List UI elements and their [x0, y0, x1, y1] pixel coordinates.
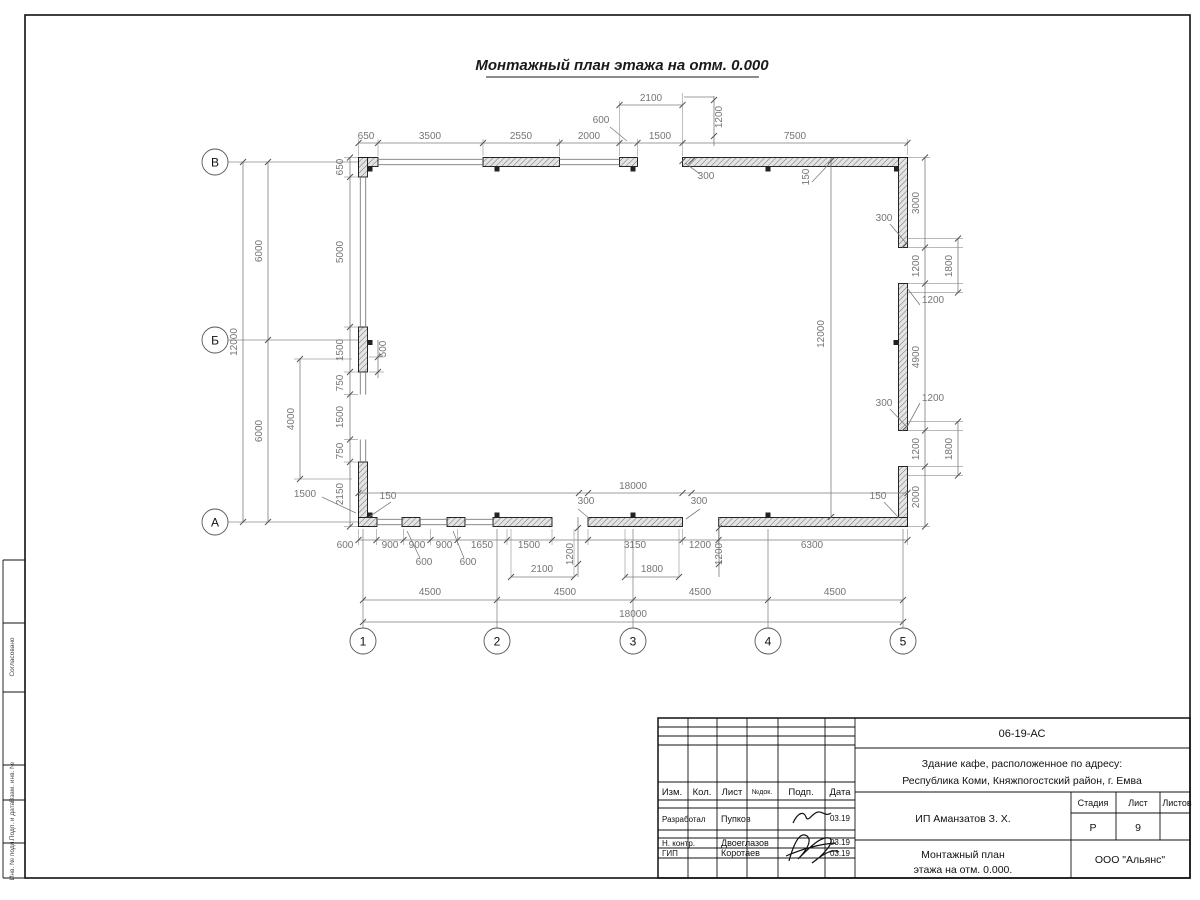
dimension-value: 4500	[689, 587, 712, 598]
row-role-ncontrol: Н. контр.	[662, 839, 695, 848]
dimension-value: 600	[337, 540, 354, 551]
dimension-value: 6000	[254, 419, 265, 442]
dimension-value: 750	[335, 374, 346, 391]
dimension-value: 600	[460, 557, 477, 568]
frame-side-label: Взам. инв. №	[9, 762, 16, 802]
dimension-value: 900	[409, 540, 426, 551]
sheet-number: 9	[1135, 822, 1141, 834]
dimension-value: 500	[378, 340, 389, 357]
row-date-ncontrol: 03.19	[830, 838, 851, 847]
page-title: Монтажный план этажа на отм. 0.000	[475, 57, 769, 74]
col-podp: Подп.	[788, 787, 813, 798]
axis-bubble-label: В	[211, 156, 219, 170]
frame-side-label: Подп. и дата	[9, 801, 16, 840]
dimension-value: 1500	[294, 489, 317, 500]
dimension-value: 12000	[816, 320, 827, 348]
axis-bubble-label: 3	[630, 635, 637, 649]
dimension-value: 7500	[784, 131, 807, 142]
dimension-value: 3500	[419, 131, 442, 142]
dimension-value: 1200	[689, 540, 712, 551]
dimension-value: 4500	[554, 587, 577, 598]
sheet-label: Лист	[1128, 798, 1148, 808]
dimension-value: 1500	[518, 540, 541, 551]
dimension-value: 1800	[944, 437, 955, 460]
dimension-value: 1200	[922, 295, 945, 306]
col-list: Лист	[722, 787, 743, 798]
dimension-value: 18000	[619, 481, 647, 492]
sheet-frame	[3, 15, 1190, 878]
stage-value: Р	[1089, 822, 1096, 834]
dimension-value: 900	[436, 540, 453, 551]
dimension-value: 4500	[824, 587, 847, 598]
row-name-ncontrol: Двоеглазов	[721, 838, 769, 848]
dimension-value: 650	[335, 158, 346, 175]
project-address-line1: Здание кафе, расположенное по адресу:	[922, 758, 1122, 770]
col-izm: Изм.	[662, 787, 682, 798]
dimension-value: 4000	[286, 407, 297, 430]
row-date-developer: 03.19	[830, 814, 851, 823]
dimension-value: 2100	[531, 564, 554, 575]
frame-side-label: Согласовано	[9, 637, 16, 676]
dimension-value: 300	[698, 171, 715, 182]
dimension-value: 1800	[944, 254, 955, 277]
axis-bubble-label: А	[211, 516, 219, 530]
dimension-value: 300	[876, 398, 893, 409]
drawing-sheet: Монтажный план этажа на отм. 0.000	[0, 0, 1200, 900]
dimension-value: 1200	[922, 393, 945, 404]
dimension-value: 1200	[714, 542, 725, 565]
axis-bubble-label: 4	[765, 635, 772, 649]
dimension-value: 12000	[229, 328, 240, 356]
dimension-value: 18000	[619, 609, 647, 620]
col-kol: Кол.	[693, 787, 712, 798]
dimension-value: 650	[358, 131, 375, 142]
dimension-value: 1200	[911, 254, 922, 277]
dimension-value: 6000	[254, 239, 265, 262]
axis-bubble-label: 5	[900, 635, 907, 649]
dimension-value: 1800	[641, 564, 664, 575]
side-column-labels: СогласованоВзам. инв. №Подп. и датаИнв. …	[9, 637, 16, 880]
dimension-value: 2000	[578, 131, 601, 142]
dimension-value: 1200	[714, 105, 725, 128]
organization-name: ООО "Альянс"	[1095, 854, 1165, 866]
dimension-value: 150	[380, 491, 397, 502]
dimension-value: 4500	[419, 587, 442, 598]
doc-code: 06-19-АС	[999, 728, 1046, 740]
dimension-value: 600	[593, 115, 610, 126]
axis-bubble-label: Б	[211, 334, 219, 348]
dimension-value: 6300	[801, 540, 824, 551]
dimension-value: 300	[876, 213, 893, 224]
stage-label: Стадия	[1078, 798, 1109, 808]
dimension-value: 3000	[911, 191, 922, 214]
row-name-developer: Пупков	[721, 814, 751, 824]
dimension-value: 1500	[335, 338, 346, 361]
frame-side-label: Инв. № подл.	[9, 840, 16, 881]
dimension-value: 300	[691, 496, 708, 507]
dimension-labels: 2100600120065035002550200015007500300150…	[229, 93, 955, 620]
client-name: ИП Аманзатов З. Х.	[915, 813, 1010, 825]
axis-bubble-label: 1	[360, 635, 367, 649]
sheets-label: Листов	[1162, 798, 1191, 808]
dimension-value: 300	[578, 496, 595, 507]
dimension-value: 150	[870, 491, 887, 502]
dimension-value: 2000	[911, 485, 922, 508]
dimension-value: 2150	[335, 482, 346, 505]
project-address-line2: Республика Коми, Княжпогостский район, г…	[902, 775, 1142, 787]
col-data: Дата	[829, 787, 851, 798]
dimension-value: 1500	[649, 131, 672, 142]
row-name-gip: Коротаев	[721, 848, 760, 858]
dimension-value: 4900	[911, 345, 922, 368]
floor-plan-drawing: Монтажный план этажа на отм. 0.000	[0, 0, 1200, 900]
dimension-value: 2550	[510, 131, 533, 142]
dimension-value: 900	[382, 540, 399, 551]
dimension-value: 1500	[335, 405, 346, 428]
col-ndok: №док.	[752, 789, 773, 796]
dimension-value: 5000	[335, 240, 346, 263]
dimension-value: 3150	[624, 540, 647, 551]
dimension-value: 2100	[640, 93, 663, 104]
drawing-name-line2: этажа на отм. 0.000.	[914, 864, 1013, 876]
row-role-developer: Разработал	[662, 815, 706, 824]
dimension-value: 1200	[565, 542, 576, 565]
dimension-value: 1200	[911, 437, 922, 460]
dimension-value: 1650	[471, 540, 494, 551]
row-role-gip: ГИП	[662, 849, 678, 858]
dimension-value: 750	[335, 442, 346, 459]
window-lines	[360, 159, 619, 524]
axis-bubbles: ВБА12345	[202, 149, 916, 654]
title-block: Изм. Кол. Лист №док. Подп. Дата Разработ…	[658, 718, 1192, 878]
dimension-value: 150	[801, 168, 812, 185]
drawing-name-line1: Монтажный план	[921, 849, 1005, 861]
dimension-value: 600	[416, 557, 433, 568]
axis-bubble-label: 2	[494, 635, 501, 649]
